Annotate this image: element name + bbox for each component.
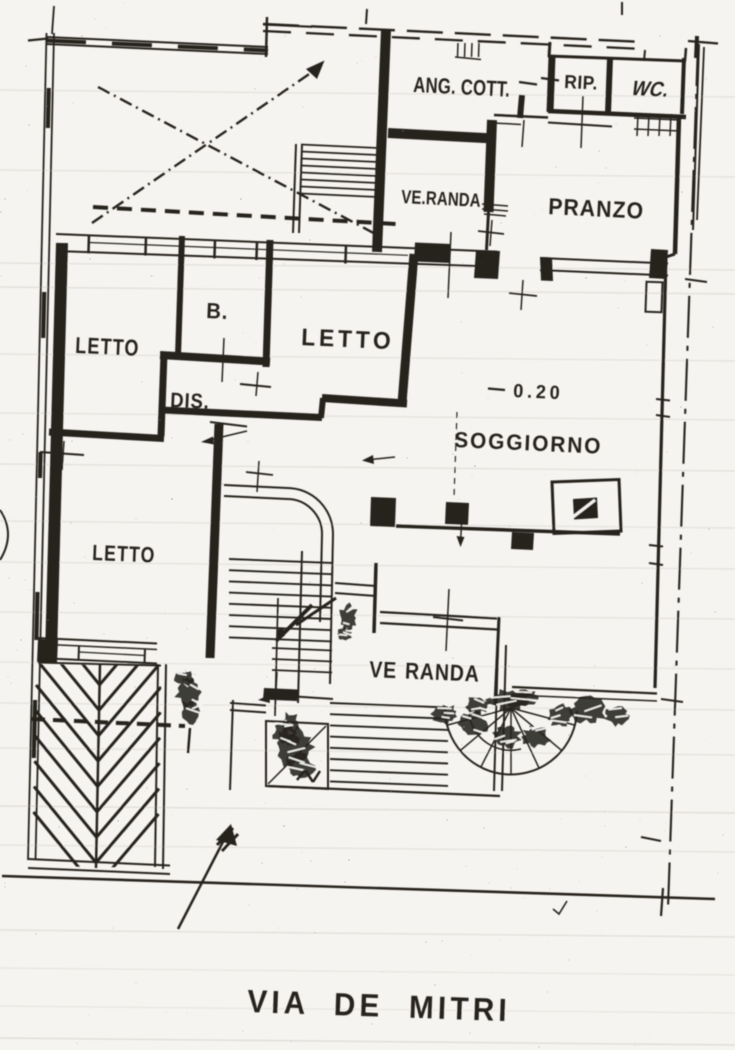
- svg-text:VE.RANDA: VE.RANDA: [401, 186, 482, 211]
- svg-text:PRANZO: PRANZO: [548, 193, 645, 224]
- svg-text:DIS.: DIS.: [170, 389, 210, 414]
- svg-text:WC.: WC.: [628, 78, 673, 102]
- svg-text:LETTO: LETTO: [75, 333, 140, 362]
- svg-text:ANG. COTT.: ANG. COTT.: [413, 73, 511, 102]
- svg-text:LETTO: LETTO: [92, 541, 156, 568]
- svg-text:B.: B.: [206, 299, 229, 324]
- svg-text:0.20: 0.20: [513, 380, 564, 404]
- svg-text:LETTO: LETTO: [301, 323, 395, 354]
- svg-text:RIP.: RIP.: [564, 70, 599, 93]
- svg-text:VE RANDA: VE RANDA: [369, 657, 481, 687]
